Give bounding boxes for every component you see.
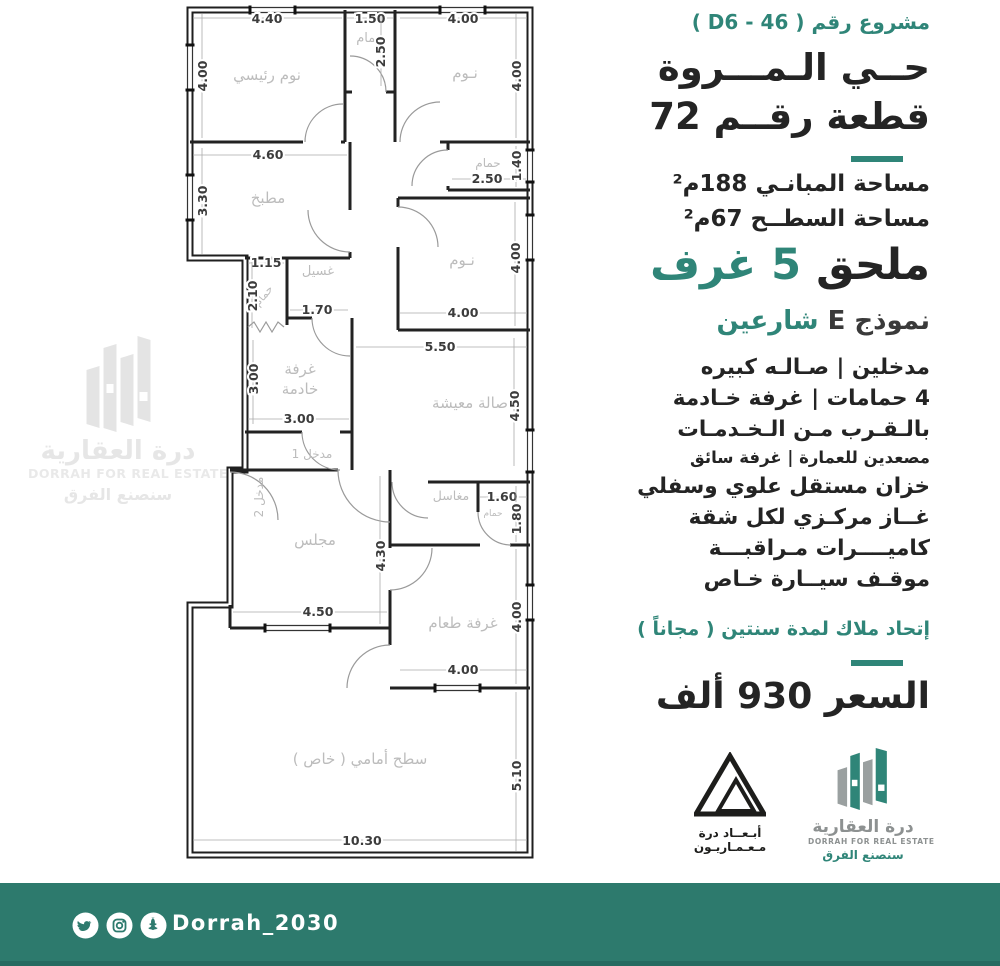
area-specs: مساحة المبانـي 188م² مساحة السطــح 67م² (672, 167, 930, 237)
window-mark (186, 219, 195, 222)
window-mark (526, 429, 535, 432)
room-label: سطح أمامي ( خاص ) (293, 749, 428, 769)
window-mark (186, 175, 195, 220)
window-mark (265, 624, 330, 633)
social-handle: Dorrah_2030 (172, 911, 339, 935)
room-label: نـوم (449, 251, 475, 269)
price: السعر 930 ألف (656, 676, 930, 717)
window-mark (186, 44, 195, 47)
window-mark (329, 624, 332, 633)
abaad-line1: أبـعــاد درة (690, 826, 770, 840)
dimension-label: 4.30 (373, 540, 388, 571)
instagram-icon[interactable] (106, 912, 133, 939)
footer-edge (0, 961, 1000, 966)
project-label: مشروع رقم (811, 10, 930, 34)
dimension-label: 1.80 (509, 503, 524, 534)
building-area: مساحة المبانـي 188م² (672, 167, 930, 202)
room-label: غرفة (284, 360, 315, 378)
feature-line: بالـقـرب مـن الـخـدمـات (637, 414, 930, 445)
model-name: نموذج E (828, 306, 930, 336)
room-label: غرفة طعام (428, 614, 497, 632)
room-label: مطبخ (251, 189, 286, 207)
room-label: صالة معيشة (432, 394, 508, 412)
divider-bottom (851, 660, 903, 666)
room-label: مدخل 1 (292, 447, 333, 461)
window-mark (526, 259, 535, 262)
dorrah-slogan: سنصنع الفرق (808, 848, 918, 862)
room-label: نوم رئيسي (233, 66, 301, 85)
room-label: نـوم (452, 64, 478, 82)
window-mark (439, 6, 442, 15)
windows (186, 6, 535, 693)
dimension-label: 3.00 (284, 411, 315, 426)
dimension-label: 4.60 (253, 147, 284, 162)
window-mark (526, 149, 535, 152)
project-number: مشروع رقم ( D6 - 46 ) (692, 10, 930, 34)
feature-line: 4 حمامات | غرفة خـادمة (637, 383, 930, 414)
feature-line: مدخلين | صـالـه كبيره (637, 352, 930, 383)
shower-zigzag (248, 322, 284, 332)
dimension-label: 5.50 (425, 339, 456, 354)
abaad-line2: مـعـمـاريـون (690, 840, 770, 854)
room-label: مدخل 2 (252, 477, 266, 518)
annex-rooms: 5 غرف (650, 240, 801, 290)
divider-top (851, 156, 903, 162)
room-label: حمام (483, 509, 502, 519)
room-label: غسيل (302, 264, 334, 279)
model-line: نموذج E شارعين (716, 306, 930, 336)
window-mark (186, 45, 195, 90)
dimension-label: 4.40 (252, 11, 283, 26)
dimension-label: 2.50 (373, 36, 388, 67)
annex-word: ملحق (816, 240, 930, 290)
dimension-label: 4.00 (509, 601, 524, 632)
roof-area: مساحة السطــح 67م² (672, 202, 930, 237)
window-mark (526, 471, 535, 474)
features-list: مدخلين | صـالـه كبيره4 حمامات | غرفة خـا… (637, 352, 930, 595)
district-title: حــي الـمـــروة (658, 46, 930, 89)
window-mark (186, 174, 195, 177)
dimension-label: 4.00 (508, 242, 523, 273)
window-mark (526, 584, 535, 587)
dimension-label: 2.10 (245, 280, 260, 311)
room-label: مغاسل (433, 488, 469, 503)
dimension-label: 2.50 (472, 171, 503, 186)
room-label: حمام (475, 156, 500, 170)
outer-wall (190, 10, 530, 855)
dorrah-arabic-name: درة العقارية (808, 817, 918, 837)
dimension-label: 1.15 (251, 255, 282, 270)
window-mark (526, 619, 535, 622)
dorrah-building-icon (837, 748, 889, 810)
window-mark (526, 150, 535, 182)
window-mark (484, 6, 487, 15)
window-mark (526, 214, 535, 217)
dimension-label: 4.50 (507, 390, 522, 421)
window-mark (526, 430, 535, 472)
window-mark (526, 215, 535, 260)
snapchat-icon[interactable] (140, 912, 167, 939)
dimension-label: 1.60 (487, 489, 518, 504)
dimension-label: 5.10 (509, 760, 524, 791)
inner-walls (190, 10, 530, 688)
room-label: خادمة (282, 380, 319, 398)
dimension-label: 4.50 (303, 604, 334, 619)
owners-union-note: إتحاد ملاك لمدة سنتين ( مجاناً ) (637, 618, 930, 640)
feature-line: موقـف سيــارة خـاص (637, 564, 930, 595)
window-mark (434, 684, 437, 693)
social-icons (72, 912, 167, 939)
window-mark (294, 6, 297, 15)
dimension-label: 3.30 (195, 185, 210, 216)
feature-line: مصعدين للعمارة | غرفة سائق (637, 445, 930, 471)
footer-bar: Dorrah_2030 (0, 883, 1000, 966)
dorrah-realestate-logo: درة العقارية DORRAH FOR REAL ESTATE سنصن… (808, 748, 918, 862)
dimension-label: 10.30 (342, 833, 382, 848)
feature-line: كاميــــرات مـراقبـــة (637, 533, 930, 564)
plot-number: قطعة رقــم 72 (649, 95, 930, 138)
dimension-label: 4.00 (195, 60, 210, 91)
annex-title: ملحق 5 غرف (650, 240, 930, 290)
model-streets: شارعين (716, 306, 818, 336)
twitter-icon[interactable] (72, 912, 99, 939)
window-mark (526, 585, 535, 620)
dimension-label: 1.40 (509, 150, 524, 181)
dorrah-english-name: DORRAH FOR REAL ESTATE (808, 837, 918, 846)
dimension-label: 4.00 (509, 60, 524, 91)
abaad-architects-logo: أبـعــاد درة مـعـمـاريـون (690, 752, 770, 854)
dimension-label: 3.00 (246, 363, 261, 394)
dimension-label: 4.00 (448, 305, 479, 320)
triangle-logo-icon (694, 752, 766, 818)
window-mark (264, 624, 267, 633)
dimension-label: 4.00 (448, 662, 479, 677)
window-mark (435, 684, 480, 693)
dimension-label: 4.00 (448, 11, 479, 26)
feature-line: خزان مستقل علوي وسفلي (637, 471, 930, 502)
window-mark (479, 684, 482, 693)
dimension-label: 1.70 (302, 302, 333, 317)
window-mark (526, 181, 535, 184)
project-code: ( D6 - 46 ) (692, 10, 805, 34)
window-mark (186, 89, 195, 92)
feature-line: غــاز مركـزي لكل شقة (637, 502, 930, 533)
room-label: مجلس (294, 531, 336, 549)
